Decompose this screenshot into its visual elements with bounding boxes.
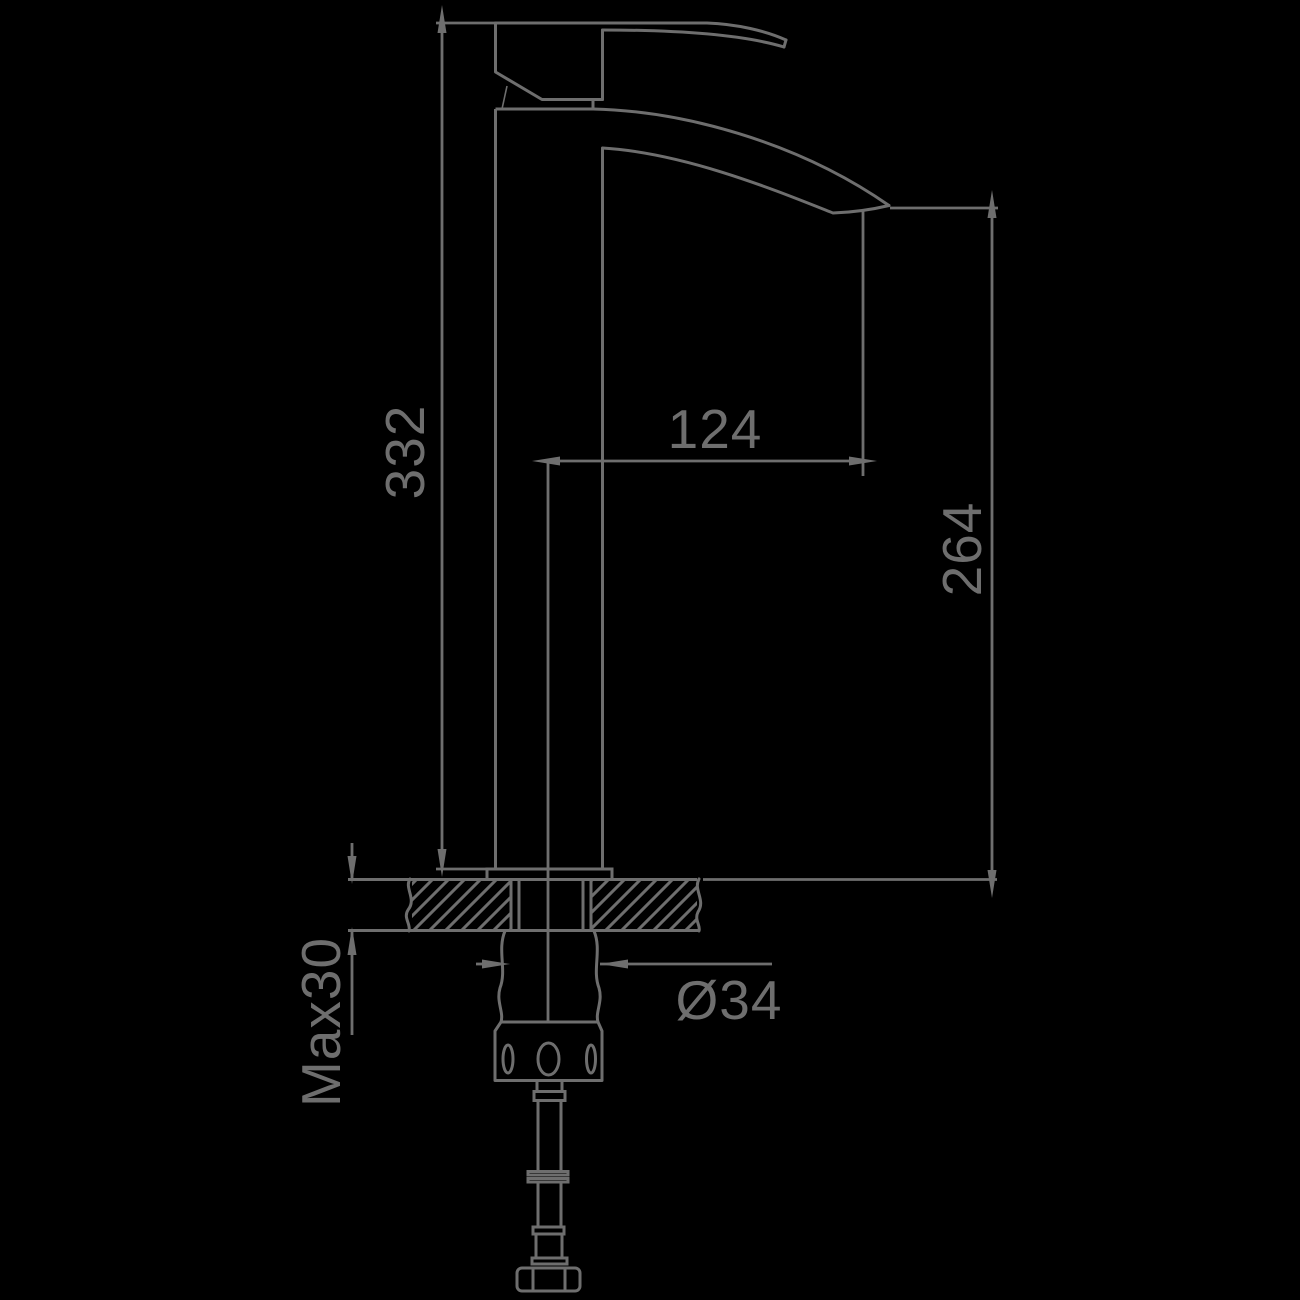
dim-label-332: 332 (374, 405, 436, 500)
dim-label-264: 264 (931, 502, 993, 597)
hatch-left (412, 880, 511, 930)
dim-label-124: 124 (668, 398, 763, 460)
background (0, 0, 1300, 1300)
faucet-technical-drawing: 332 124 264 Max30 Ø34 (0, 0, 1300, 1300)
drawing-canvas: 332 124 264 Max30 Ø34 (0, 0, 1300, 1300)
handle-lever-tip (784, 40, 786, 47)
dim-label-o34: Ø34 (676, 969, 783, 1031)
dim-label-max30: Max30 (290, 937, 352, 1107)
hatch-right (591, 880, 697, 930)
